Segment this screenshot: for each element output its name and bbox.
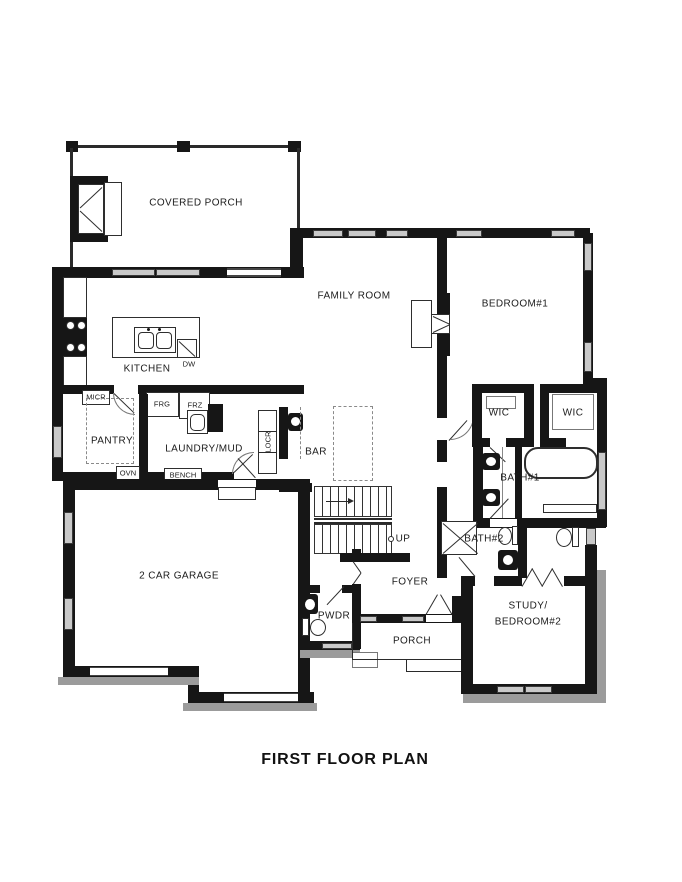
burner bbox=[66, 343, 75, 352]
garage-door-1 bbox=[90, 667, 168, 676]
family-room-window bbox=[386, 230, 408, 237]
siding-strip bbox=[300, 650, 360, 658]
stair-south-wall bbox=[340, 553, 410, 562]
garage-west-wall bbox=[63, 479, 75, 677]
family-hall-wall bbox=[437, 356, 447, 418]
study-label-line2: BEDROOM#2 bbox=[495, 617, 561, 628]
dw-label: DW bbox=[183, 360, 196, 369]
burner bbox=[77, 321, 86, 330]
study-label-line1: STUDY/ bbox=[508, 601, 547, 612]
kitchen-window bbox=[156, 269, 200, 276]
porch-right-wall bbox=[297, 148, 300, 230]
drawing-title: FIRST FLOOR PLAN bbox=[261, 751, 428, 769]
garage-label: 2 CAR GARAGE bbox=[139, 571, 219, 582]
pantry-east-wall bbox=[139, 394, 148, 473]
porch-label: PORCH bbox=[393, 636, 431, 647]
bath2-sink-bowl bbox=[503, 555, 513, 565]
frz-label: FRZ bbox=[188, 401, 203, 410]
wic2-south-wall bbox=[540, 438, 566, 447]
front-door-opening bbox=[426, 615, 452, 622]
porch-step-edge bbox=[406, 671, 462, 672]
kitchen-window bbox=[112, 269, 155, 276]
bedroom1-window bbox=[551, 230, 575, 237]
front-door-leaf bbox=[426, 594, 438, 614]
wic1-label: WIC bbox=[489, 408, 510, 419]
study-door-leaf bbox=[459, 557, 476, 577]
closet-bifold-door bbox=[552, 568, 563, 587]
fireplace-hearth bbox=[411, 300, 432, 348]
bedroom1-label: BEDROOM#1 bbox=[482, 299, 548, 310]
bar-counter-line bbox=[300, 407, 301, 459]
siding-strip bbox=[463, 694, 606, 703]
pantry-window bbox=[53, 426, 62, 458]
first-floor-plan-drawing: COVERED PORCH DW KITCHEN MICR FRG FRZ OV… bbox=[0, 0, 682, 882]
coat-closet-door bbox=[353, 573, 362, 585]
family-room-window bbox=[313, 230, 343, 237]
garage-east-wall bbox=[298, 479, 310, 703]
foyer-window bbox=[360, 616, 377, 622]
frg-label: FRG bbox=[154, 400, 170, 409]
garage-north-wall bbox=[63, 479, 310, 490]
porch-post-mid bbox=[177, 141, 190, 152]
garage-door-2 bbox=[224, 693, 306, 702]
laundry-wall-stub bbox=[208, 404, 223, 432]
toilet-room-tank bbox=[572, 527, 579, 547]
porch-sliding-door bbox=[227, 268, 281, 277]
stair-arrow bbox=[348, 498, 354, 504]
toilet-room-bowl bbox=[556, 528, 572, 547]
porch-fireplace-hearth bbox=[104, 182, 122, 236]
foyer-label: FOYER bbox=[392, 577, 428, 588]
bar-label: BAR bbox=[305, 447, 327, 458]
tub-window bbox=[598, 452, 606, 510]
porch-edge bbox=[352, 659, 462, 660]
burner bbox=[66, 321, 75, 330]
wic2-label: WIC bbox=[563, 408, 584, 419]
laundry-sink bbox=[190, 414, 205, 431]
study-west-wall bbox=[461, 598, 473, 694]
pantry-label: PANTRY bbox=[91, 436, 133, 447]
siding-strip bbox=[597, 570, 606, 694]
study-window bbox=[525, 686, 552, 693]
burner bbox=[77, 343, 86, 352]
siding-strip bbox=[183, 703, 317, 711]
porch-edge bbox=[352, 623, 353, 660]
pwdr-north-wall bbox=[310, 585, 320, 593]
bedroom1-window bbox=[584, 342, 592, 372]
stair-direction-line bbox=[326, 501, 348, 502]
bath2-label: BATH#2 bbox=[464, 534, 503, 545]
sink-basin bbox=[138, 332, 154, 349]
bedroom1-window bbox=[584, 243, 592, 271]
family-room-label: FAMILY ROOM bbox=[318, 291, 391, 302]
family-room-window bbox=[348, 230, 376, 237]
sink-basin bbox=[156, 332, 172, 349]
garage-window bbox=[64, 512, 73, 544]
stoop-step bbox=[352, 652, 378, 668]
family-hall-wall bbox=[437, 440, 447, 462]
kitchen-counter bbox=[63, 277, 87, 318]
family-hall-wall bbox=[437, 238, 447, 295]
siding-strip bbox=[58, 677, 199, 685]
wic1-south-wall bbox=[472, 438, 490, 447]
family-fireplace bbox=[437, 334, 450, 356]
up-label: UP bbox=[396, 534, 411, 545]
locr-label: LOCR bbox=[264, 431, 273, 452]
pwdr-toilet-bowl bbox=[310, 619, 326, 636]
faucet-dot bbox=[158, 328, 161, 331]
foyer-window bbox=[402, 616, 424, 622]
bar-west-wall bbox=[279, 407, 288, 459]
tub-step bbox=[543, 504, 597, 513]
pantry-shelving bbox=[86, 398, 134, 464]
chase-outline bbox=[333, 406, 373, 481]
toilet-room-east-wall bbox=[585, 518, 597, 528]
foyer-west-wall bbox=[352, 549, 361, 561]
porch-fireplace-wall bbox=[70, 176, 78, 242]
laundry-label: LAUNDRY/MUD bbox=[165, 444, 243, 455]
pwdr-door-leaf bbox=[327, 586, 345, 605]
closet-bifold-door bbox=[542, 568, 553, 587]
kitchen-label: KITCHEN bbox=[124, 364, 171, 375]
bedroom1-window bbox=[456, 230, 482, 237]
vanity-sink-bowl bbox=[486, 493, 496, 502]
ovn-label: OVN bbox=[120, 469, 137, 478]
pwdr-toilet-tank bbox=[302, 618, 309, 636]
garage-window bbox=[64, 598, 73, 630]
wic2-north-wall bbox=[540, 384, 606, 393]
toilet-room-window bbox=[586, 528, 596, 545]
stair-stringer bbox=[314, 518, 392, 520]
covered-porch-label: COVERED PORCH bbox=[149, 198, 243, 209]
pwdr-window bbox=[322, 643, 352, 649]
front-door-leaf bbox=[440, 594, 452, 614]
bath2-west-wall bbox=[437, 552, 447, 578]
wic1-south-wall bbox=[506, 438, 534, 447]
bar-sink-bowl bbox=[291, 417, 300, 426]
study-window bbox=[497, 686, 524, 693]
family-fireplace bbox=[437, 293, 450, 314]
bath2-divider-wall bbox=[518, 528, 527, 578]
pwdr-sink-bowl bbox=[305, 599, 315, 610]
pwdr-label: PWDR bbox=[318, 611, 350, 622]
study-east-wall bbox=[585, 545, 597, 694]
up-marker-dot bbox=[388, 536, 394, 542]
bath1-label: BATH#1 bbox=[500, 473, 539, 484]
porch-firebox bbox=[78, 184, 104, 234]
vanity-sink-bowl bbox=[486, 457, 496, 466]
garage-entry-landing bbox=[218, 487, 256, 500]
faucet-dot bbox=[147, 328, 150, 331]
bedroom1-door-arc bbox=[450, 416, 474, 440]
